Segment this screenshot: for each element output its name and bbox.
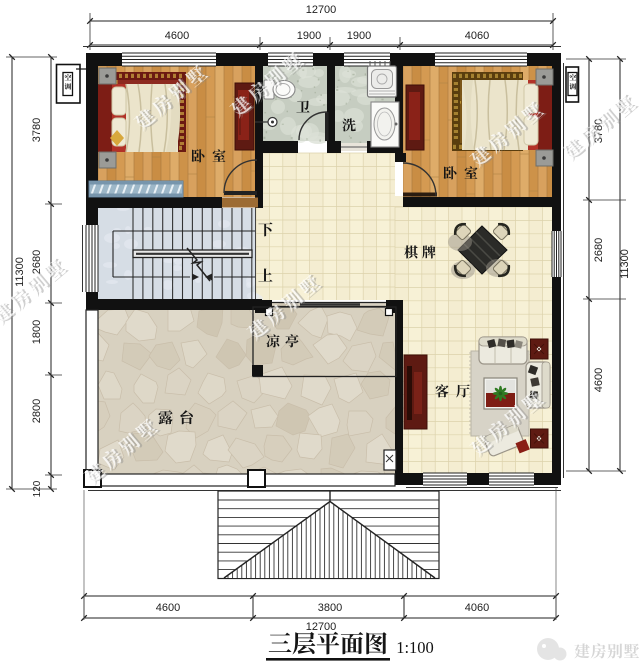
svg-text:11300: 11300 [14,257,26,287]
svg-text:11300: 11300 [619,249,631,279]
svg-text:3800: 3800 [318,602,342,614]
svg-text:12700: 12700 [306,621,337,633]
svg-text:4600: 4600 [156,602,180,614]
svg-text:2680: 2680 [31,250,43,274]
svg-text:3780: 3780 [31,118,43,142]
svg-text:1:100: 1:100 [396,638,434,657]
svg-text:4600: 4600 [593,368,605,392]
svg-text:2680: 2680 [593,238,605,262]
svg-text:12700: 12700 [306,4,337,16]
svg-text:4600: 4600 [165,30,189,42]
svg-text:1900: 1900 [347,30,371,42]
svg-text:4060: 4060 [465,30,489,42]
svg-text:4060: 4060 [465,602,489,614]
svg-text:2800: 2800 [31,399,43,423]
svg-text:1900: 1900 [297,30,321,42]
svg-text:1800: 1800 [31,320,43,344]
